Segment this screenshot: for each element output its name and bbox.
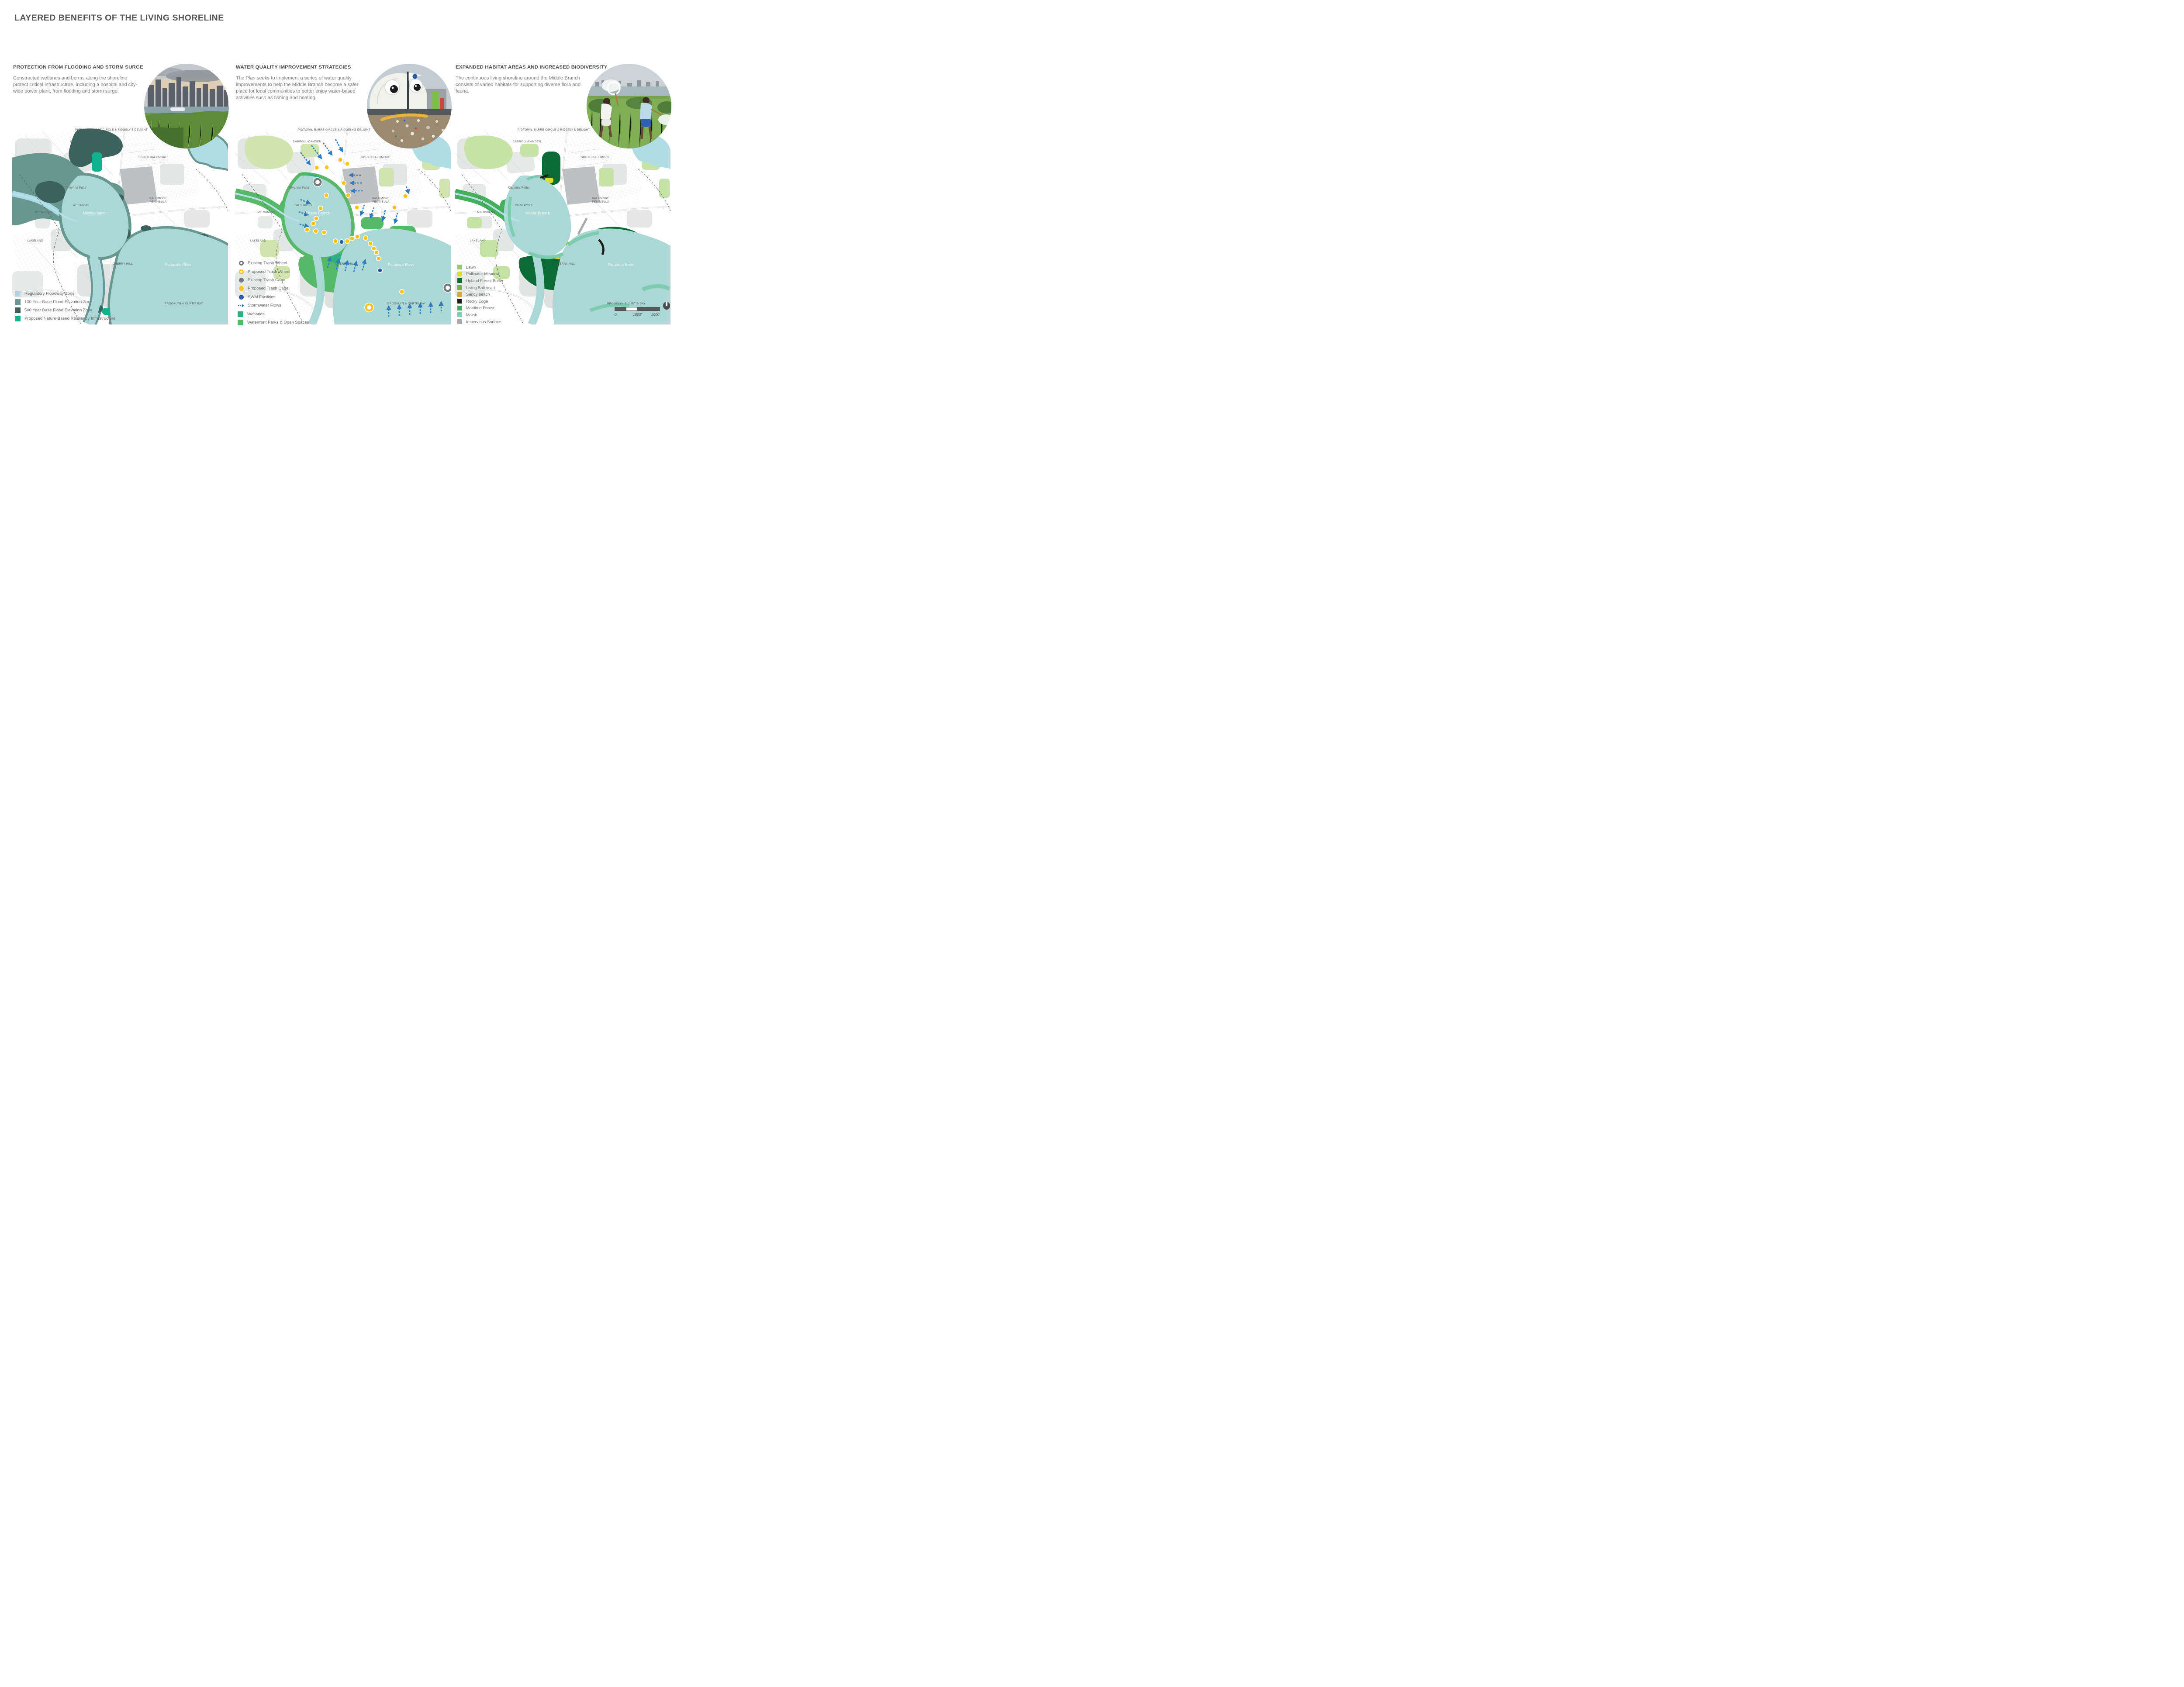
legend-row: Maritime Forest	[457, 305, 504, 312]
photo-kids-with-nets	[587, 64, 671, 148]
map-label-mt-winans: MT. WINANS	[469, 211, 504, 214]
photo-trash-wheel	[367, 64, 452, 148]
waterfront-parks-swatch	[238, 320, 243, 325]
report-page: LAYERED BENEFITS OF THE LIVING SHORELINE…	[0, 0, 685, 334]
photo-kids-with-nets-art	[587, 64, 671, 148]
map-label-middle-branch: Middle Branch	[520, 211, 555, 216]
map-label-westport: WESTPORT	[287, 204, 321, 207]
legend-label: Upland Forest Buffer	[466, 279, 504, 283]
legend-row: Upland Forest Buffer	[457, 277, 504, 284]
map-label-middle-branch: Middle Branch	[78, 211, 113, 216]
map-label-brooklyn: BROOKLYN & CURTIS BAY	[374, 302, 439, 306]
flood-100yr-swatch	[15, 299, 21, 305]
legend-label: Proposed Trash Cage	[248, 286, 288, 291]
section-body: Constructed wetlands and berms along the…	[13, 75, 142, 95]
marsh-swatch	[457, 312, 462, 317]
map-label-south-baltimore: SOUTH BALTIMORE	[578, 156, 613, 159]
map-label-middle-branch: Middle Branch	[301, 211, 335, 216]
map-label-mt-winans: MT. WINANS	[249, 211, 284, 214]
legend-label: Stormwater Flows	[248, 303, 281, 308]
floodway-swatch	[15, 291, 21, 297]
photo-wetland-skyline	[144, 64, 229, 148]
legend-row: Waterfront Parks & Open Spaces	[238, 318, 309, 327]
scale-end-label: 2000'	[651, 312, 660, 317]
legend-row: SWM Facilities	[238, 293, 309, 301]
legend-row: Stormwater Flows	[238, 301, 309, 310]
legend-row: 100 Year Base Flood Elevation Zone	[15, 298, 116, 306]
legend-row: Impervious Surface	[457, 318, 504, 325]
swm-facilities-icon	[238, 293, 245, 300]
legend-row: Sandy beach	[457, 291, 504, 298]
legend-label: Marsh	[466, 313, 477, 317]
map-label-baltimore-peninsula: BALTIMORE PENINSULA	[363, 197, 398, 204]
wetlands-swatch	[238, 311, 243, 317]
legend-row: Proposed Trash Wheel	[238, 267, 309, 276]
map-label-south-baltimore: SOUTH BALTIMORE	[135, 156, 170, 159]
photo-wetland-skyline-art	[144, 64, 229, 148]
map-label-gwynns-falls: Gwynns Falls	[63, 186, 89, 190]
living-bulkhead-swatch	[457, 285, 462, 290]
legend-label: Impervious Surface	[466, 320, 501, 324]
legend-water-quality: Existing Trash Wheel Proposed Trash Whee…	[238, 259, 309, 327]
existing-trash-cage-icon	[238, 276, 245, 283]
legend-label: Existing Trash Wheel	[248, 261, 287, 266]
scale-bar: 0 1000' 2000'	[615, 307, 660, 317]
proposed-trash-wheel-icon	[238, 268, 245, 275]
map-label-carroll-camden: CARROLL-CAMDEN	[58, 140, 111, 144]
map-label-cherry-hill: CHERRY HILL	[328, 262, 363, 266]
legend-row: Pollinator Meadow	[457, 271, 504, 278]
legend-row: Marsh	[457, 311, 504, 318]
upland-forest-swatch	[457, 278, 462, 283]
map-label-mt-winans: MT. WINANS	[26, 211, 61, 214]
map-label-cherry-hill: CHERRY HILL	[548, 262, 583, 266]
map-label-pigtown: PIGTOWN, BARRE CIRCLE & RIDGELY'S DELIGH…	[293, 128, 376, 132]
legend-label: Lawn	[466, 265, 476, 269]
legend-row: Lawn	[457, 264, 504, 271]
legend-label: Regulatory Floodway Zone	[24, 291, 75, 296]
legend-flooding: Regulatory Floodway Zone 100 Year Base F…	[15, 290, 116, 323]
legend-label: Maritime Forest	[466, 306, 494, 310]
legend-habitat: Lawn Pollinator Meadow Upland Forest Buf…	[457, 264, 504, 325]
panel-flooding: PROTECTION FROM FLOODING AND STORM SURGE…	[12, 0, 228, 334]
map-label-cherry-hill: CHERRY HILL	[105, 262, 140, 266]
north-arrow-icon	[663, 301, 670, 310]
lawn-swatch	[457, 265, 462, 269]
legend-row: Wetlands	[238, 310, 309, 318]
map-label-gwynns-falls: Gwynns Falls	[505, 186, 532, 190]
legend-label: Proposed Nature-Based Resiliency Infrast…	[24, 316, 116, 321]
legend-label: SWM Facilities	[248, 295, 275, 300]
stormwater-flow-arrow-icon	[238, 302, 245, 309]
legend-label: Wetlands	[247, 312, 265, 317]
legend-label: Existing Trash Cage	[248, 278, 285, 283]
map-label-westport: WESTPORT	[64, 204, 99, 207]
legend-label: Proposed Trash Wheel	[248, 269, 290, 274]
map-label-westport: WESTPORT	[506, 204, 541, 207]
legend-row: Regulatory Floodway Zone	[15, 290, 116, 298]
legend-row: Existing Trash Wheel	[238, 259, 309, 267]
map-label-gwynns-falls: Gwynns Falls	[286, 186, 312, 190]
scale-bar-graphic	[615, 307, 660, 311]
pollinator-meadow-swatch	[457, 272, 462, 276]
legend-row: Rocky Edge	[457, 298, 504, 305]
impervious-surface-swatch	[457, 319, 462, 324]
map-label-patapsco-river: Patapsco River	[602, 262, 639, 267]
map-flooding: PIGTOWN, BARRE CIRCLE & RIDGELY'S DELIGH…	[12, 127, 228, 324]
panel-habitat: EXPANDED HABITAT AREAS AND INCREASED BIO…	[455, 0, 670, 334]
map-label-baltimore-peninsula: BALTIMORE PENINSULA	[141, 197, 176, 204]
legend-label: 500 Year Base Flood Elevation Zone	[24, 308, 93, 313]
proposed-trash-cage-icon	[238, 285, 245, 292]
legend-row: Proposed Nature-Based Resiliency Infrast…	[15, 314, 116, 323]
map-label-patapsco-river: Patapsco River	[383, 262, 419, 267]
map-label-carroll-camden: CARROLL-CAMDEN	[281, 140, 333, 144]
map-water-quality: PIGTOWN, BARRE CIRCLE & RIDGELY'S DELIGH…	[235, 127, 451, 324]
map-label-brooklyn: BROOKLYN & CURTIS BAY	[594, 302, 659, 306]
map-label-south-baltimore: SOUTH BALTIMORE	[358, 156, 393, 159]
map-label-brooklyn: BROOKLYN & CURTIS BAY	[151, 302, 217, 306]
legend-label: Sandy beach	[466, 292, 490, 297]
legend-row: Existing Trash Cage	[238, 276, 309, 284]
legend-row: Living Bulkhead	[457, 284, 504, 291]
map-label-baltimore-peninsula: BALTIMORE PENINSULA	[583, 197, 618, 204]
legend-label: 100 Year Base Flood Elevation Zone	[24, 300, 93, 304]
map-label-carroll-camden: CARROLL-CAMDEN	[501, 140, 553, 144]
map-label-lakeland: LAKELAND	[241, 239, 276, 243]
scale-mid-label: 1000'	[633, 312, 642, 317]
sandy-beach-swatch	[457, 292, 462, 297]
existing-trash-wheel-icon	[238, 260, 245, 267]
rocky-edge-swatch	[457, 299, 462, 304]
panel-water-quality: WATER QUALITY IMPROVEMENT STRATEGIES The…	[235, 0, 451, 334]
legend-label: Rocky Edge	[466, 299, 488, 304]
map-habitat: PIGTOWN, BARRE CIRCLE & RIDGELY'S DELIGH…	[455, 127, 670, 324]
legend-row: Proposed Trash Cage	[238, 284, 309, 293]
section-body: The continuous living shoreline around t…	[456, 75, 585, 95]
legend-label: Pollinator Meadow	[466, 272, 499, 276]
section-body: The Plan seeks to implement a series of …	[236, 75, 365, 101]
map-label-patapsco-river: Patapsco River	[160, 262, 197, 267]
map-label-pigtown: PIGTOWN, BARRE CIRCLE & RIDGELY'S DELIGH…	[70, 128, 153, 132]
map-label-pigtown: PIGTOWN, BARRE CIRCLE & RIDGELY'S DELIGH…	[512, 128, 595, 132]
flood-500yr-swatch	[15, 307, 21, 313]
map-label-lakeland: LAKELAND	[18, 239, 53, 243]
proposed-infra-swatch	[15, 316, 21, 321]
legend-row: 500 Year Base Flood Elevation Zone	[15, 306, 116, 314]
scale-zero-label: 0	[615, 312, 617, 317]
photo-trash-wheel-art	[367, 64, 452, 148]
legend-label: Waterfront Parks & Open Spaces	[247, 320, 309, 325]
maritime-forest-swatch	[457, 306, 462, 310]
map-label-lakeland: LAKELAND	[460, 239, 495, 243]
legend-label: Living Bulkhead	[466, 286, 495, 290]
